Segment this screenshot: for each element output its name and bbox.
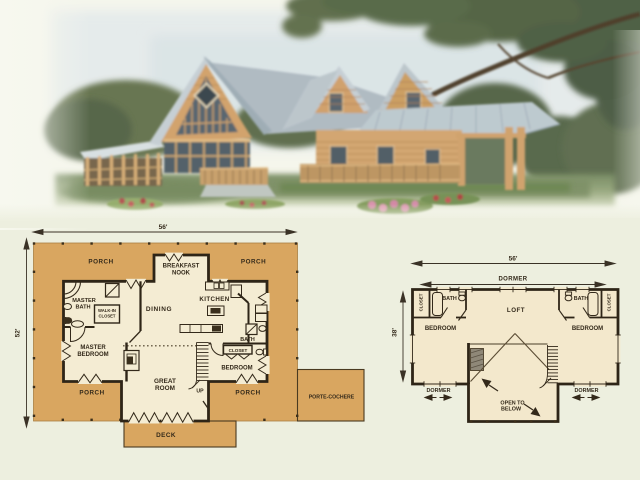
svg-text:PORCH: PORCH xyxy=(235,390,260,397)
svg-text:DORMER: DORMER xyxy=(427,388,451,394)
svg-text:56': 56' xyxy=(159,224,168,231)
svg-text:DINING: DINING xyxy=(146,306,172,313)
svg-text:DORMER: DORMER xyxy=(498,277,527,283)
svg-text:BATH: BATH xyxy=(75,305,90,311)
svg-text:BEDROOM: BEDROOM xyxy=(221,366,252,372)
svg-text:PORCH: PORCH xyxy=(88,259,113,266)
svg-text:BATH: BATH xyxy=(574,296,589,302)
svg-text:BEDROOM: BEDROOM xyxy=(77,352,108,358)
svg-text:BATH: BATH xyxy=(240,337,255,343)
svg-text:BEDROOM: BEDROOM xyxy=(425,326,456,332)
svg-text:GREAT: GREAT xyxy=(154,378,176,385)
svg-text:DORMER: DORMER xyxy=(575,388,599,394)
svg-text:WALK-IN: WALK-IN xyxy=(98,308,116,313)
svg-text:BEDROOM: BEDROOM xyxy=(572,326,603,332)
svg-text:NOOK: NOOK xyxy=(172,271,191,277)
svg-text:CLOSET: CLOSET xyxy=(229,348,248,353)
svg-text:KITCHEN: KITCHEN xyxy=(199,296,229,303)
svg-text:38': 38' xyxy=(392,328,399,337)
svg-text:BELOW: BELOW xyxy=(501,407,522,413)
svg-text:BREAKFAST: BREAKFAST xyxy=(163,264,200,270)
svg-text:CLOSET: CLOSET xyxy=(607,293,612,311)
svg-text:LOFT: LOFT xyxy=(507,307,525,314)
svg-text:52': 52' xyxy=(15,328,22,337)
svg-text:ROOM: ROOM xyxy=(155,385,175,392)
svg-text:PORCH: PORCH xyxy=(79,390,104,397)
svg-text:56': 56' xyxy=(509,256,518,263)
svg-text:BATH: BATH xyxy=(442,296,457,302)
svg-text:CLOSET: CLOSET xyxy=(419,293,424,311)
svg-text:UP: UP xyxy=(196,389,204,395)
svg-text:DECK: DECK xyxy=(156,432,176,439)
svg-text:PORTE-COCHERE: PORTE-COCHERE xyxy=(309,395,355,401)
svg-text:CLOSET: CLOSET xyxy=(99,314,116,319)
svg-text:MASTER: MASTER xyxy=(72,298,96,304)
svg-text:PORCH: PORCH xyxy=(241,259,266,266)
svg-text:MASTER: MASTER xyxy=(80,345,106,351)
